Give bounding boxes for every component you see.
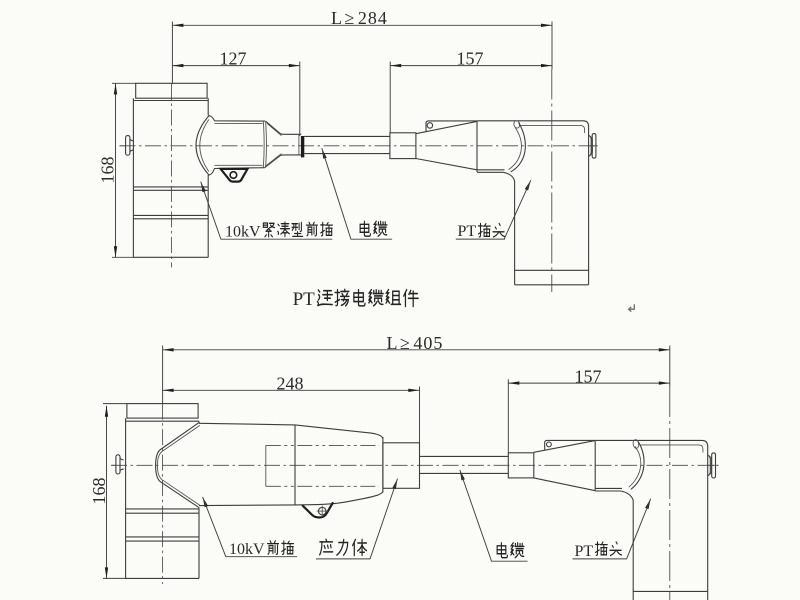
svg-text:PT: PT: [293, 289, 316, 310]
svg-text:PT: PT: [458, 223, 477, 240]
svg-text:L≥405: L≥405: [387, 333, 444, 353]
svg-text:10kV: 10kV: [229, 541, 265, 558]
svg-text:L≥284: L≥284: [331, 8, 388, 28]
svg-text:168: 168: [97, 157, 117, 184]
svg-text:248: 248: [277, 373, 304, 393]
svg-text:157: 157: [575, 367, 602, 387]
svg-text:168: 168: [89, 478, 109, 505]
svg-text:127: 127: [220, 48, 247, 68]
svg-text:PT: PT: [575, 543, 594, 560]
svg-text:10kV: 10kV: [225, 223, 261, 240]
svg-text:157: 157: [457, 49, 484, 69]
